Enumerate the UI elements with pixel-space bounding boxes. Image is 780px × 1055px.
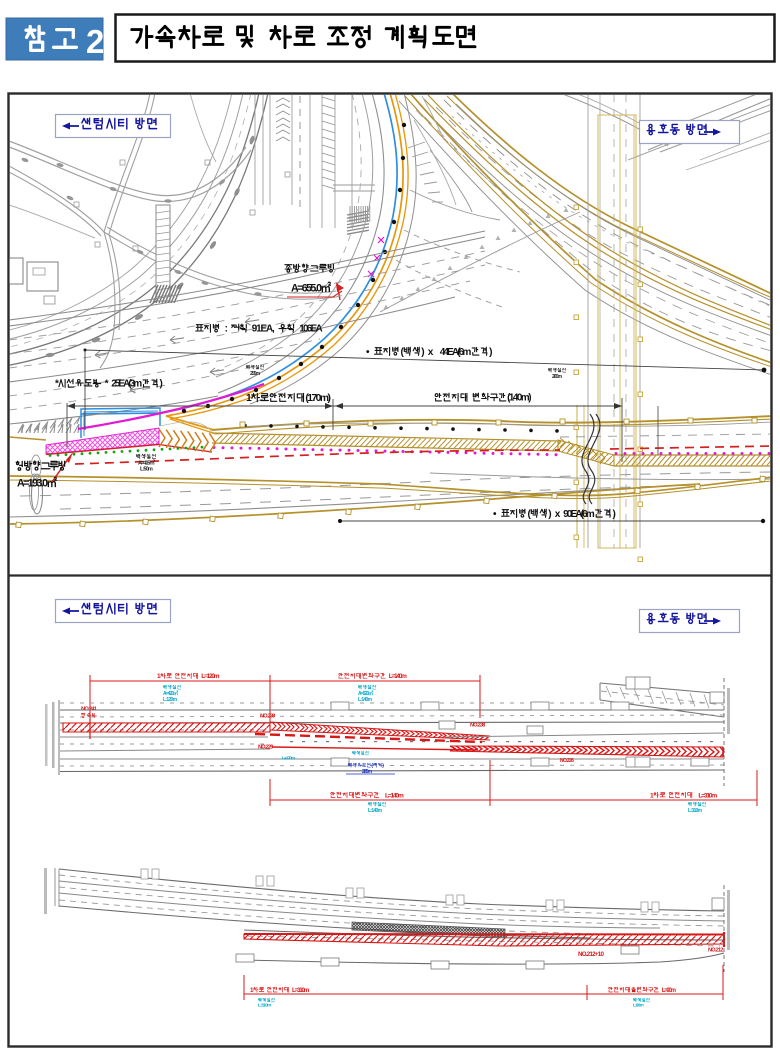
svg-text:*: *	[55, 379, 59, 390]
svg-text:A=655.0㎡: A=655.0㎡	[291, 281, 332, 294]
svg-text:L=120m: L=120m	[201, 673, 219, 680]
svg-text:): )	[160, 379, 163, 390]
svg-text:1: 1	[650, 792, 654, 799]
svg-text:NO.238: NO.238	[470, 722, 485, 728]
svg-text:): )	[548, 509, 551, 520]
svg-text:255m: 255m	[250, 371, 261, 377]
svg-text:(170m): (170m)	[305, 393, 331, 404]
svg-text:260m: 260m	[552, 374, 563, 380]
svg-text:A=520㎡: A=520㎡	[358, 690, 373, 697]
svg-text:L:310m: L:310m	[688, 808, 703, 814]
svg-text:L:90m: L:90m	[633, 1003, 644, 1008]
svg-text:L:310m: L:310m	[258, 1003, 271, 1008]
svg-text:A=193.0㎡: A=193.0㎡	[17, 476, 58, 489]
svg-text:90EA(6m: 90EA(6m	[563, 509, 595, 520]
svg-text:(140m): (140m)	[507, 393, 531, 404]
svg-text:x: x	[555, 509, 561, 520]
svg-text::: :	[225, 324, 228, 335]
svg-text:L:140m: L:140m	[368, 808, 383, 814]
svg-text:L:140m: L:140m	[358, 697, 373, 703]
svg-text:): )	[421, 347, 424, 358]
svg-text:NO.212+10: NO.212+10	[578, 951, 604, 958]
svg-text:NO.239: NO.239	[260, 713, 275, 719]
svg-text:106EA: 106EA	[299, 324, 322, 335]
svg-text:L=140m: L=140m	[385, 792, 404, 799]
svg-text:L=170m: L=170m	[282, 756, 295, 761]
svg-text:): )	[489, 347, 492, 358]
svg-text:L=140m: L=140m	[389, 673, 407, 680]
svg-text:x: x	[428, 347, 434, 358]
svg-text:A=415㎡: A=415㎡	[138, 458, 155, 466]
svg-text:25EA(3m: 25EA(3m	[111, 379, 142, 390]
svg-text:•: •	[366, 347, 370, 358]
svg-text:L:120m: L:120m	[163, 697, 178, 703]
svg-text:44EA(6m: 44EA(6m	[440, 347, 472, 358]
svg-text:NO.229: NO.229	[258, 744, 273, 750]
svg-text:91EA,: 91EA,	[252, 324, 275, 335]
svg-text:NO.226: NO.226	[560, 758, 574, 764]
svg-text:A=420㎡: A=420㎡	[163, 690, 178, 697]
svg-text:•: •	[493, 509, 497, 520]
svg-text:2: 2	[86, 23, 104, 60]
svg-text:*: *	[105, 379, 109, 390]
svg-text:): )	[613, 509, 616, 520]
svg-text:L=310m: L=310m	[698, 792, 717, 799]
svg-text:NO.212: NO.212	[708, 947, 723, 953]
svg-text:L=90m: L=90m	[662, 987, 677, 994]
svg-text:L:50m: L:50m	[140, 466, 153, 472]
svg-text:L=310m: L=310m	[292, 987, 310, 994]
